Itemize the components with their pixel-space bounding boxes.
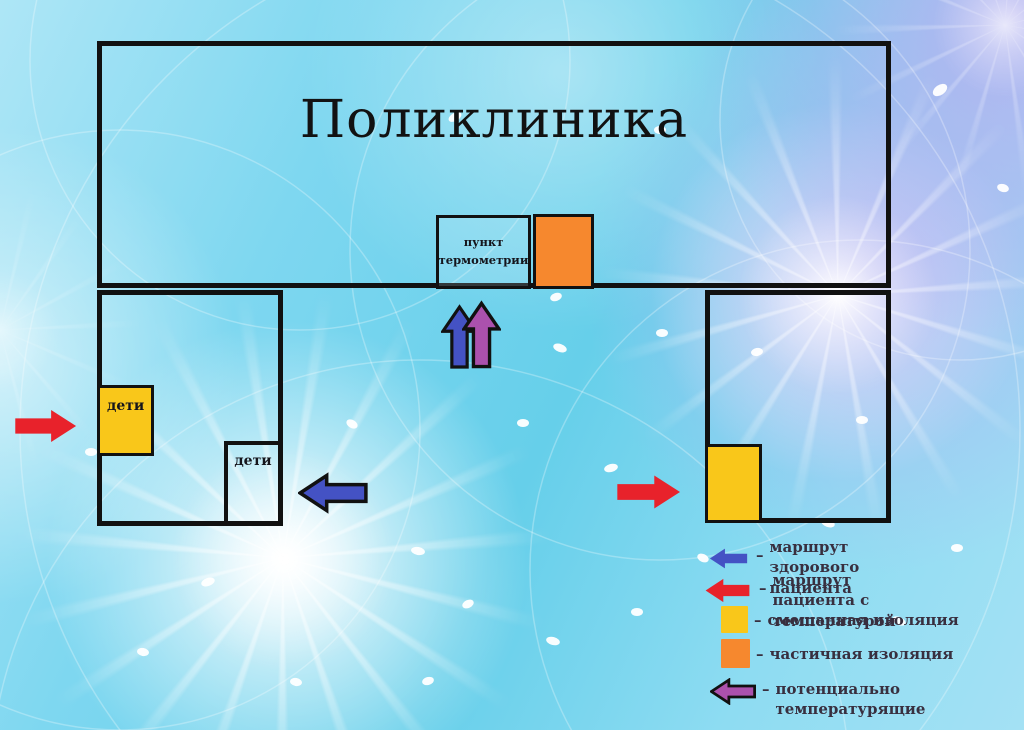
children-mixed-isolation-room: дети bbox=[97, 385, 154, 456]
partial-isolation-room bbox=[533, 214, 594, 289]
clinic-title: Поликлиника bbox=[97, 90, 891, 150]
yellow-square-icon bbox=[721, 606, 748, 633]
legend-item-partial-isolation: – частичная изоляция bbox=[721, 639, 953, 668]
legend-dash: – bbox=[756, 644, 764, 664]
blue-left-arrow-icon bbox=[707, 547, 750, 570]
legend-dash: – bbox=[762, 679, 770, 699]
red-right-arrow-right-entry bbox=[616, 473, 682, 511]
blue-left-arrow-healthy-exit bbox=[298, 472, 368, 514]
children-room: дети bbox=[224, 441, 282, 526]
legend-item-mixed-isolation: – смешанная изоляция bbox=[721, 606, 959, 633]
legend-label: смешанная изоляция bbox=[768, 610, 959, 630]
orange-square-icon bbox=[721, 639, 750, 668]
clinic-routing-diagram: Поликлиника пункт термометрии дети дети … bbox=[0, 0, 1024, 730]
legend-dash: – bbox=[756, 545, 764, 565]
children-label: дети bbox=[234, 453, 271, 469]
legend-item-potential-fever: – потенциально температурящие bbox=[710, 674, 916, 720]
red-right-arrow-left-entry bbox=[14, 406, 78, 446]
children-label: дети bbox=[107, 398, 144, 414]
right-mixed-isolation-room bbox=[705, 444, 762, 523]
legend-label: потенциально температурящие bbox=[776, 679, 916, 720]
purple-up-arrow-to-thermometry bbox=[462, 300, 501, 370]
thermometry-label: пункт термометрии bbox=[439, 234, 529, 270]
thermometry-point-room: пункт термометрии bbox=[436, 215, 531, 289]
purple-left-arrow-icon bbox=[710, 678, 756, 705]
red-left-arrow-icon bbox=[702, 577, 753, 604]
legend-label: частичная изоляция bbox=[770, 644, 954, 664]
legend-dash: – bbox=[754, 610, 762, 630]
legend-dash: – bbox=[759, 578, 767, 598]
